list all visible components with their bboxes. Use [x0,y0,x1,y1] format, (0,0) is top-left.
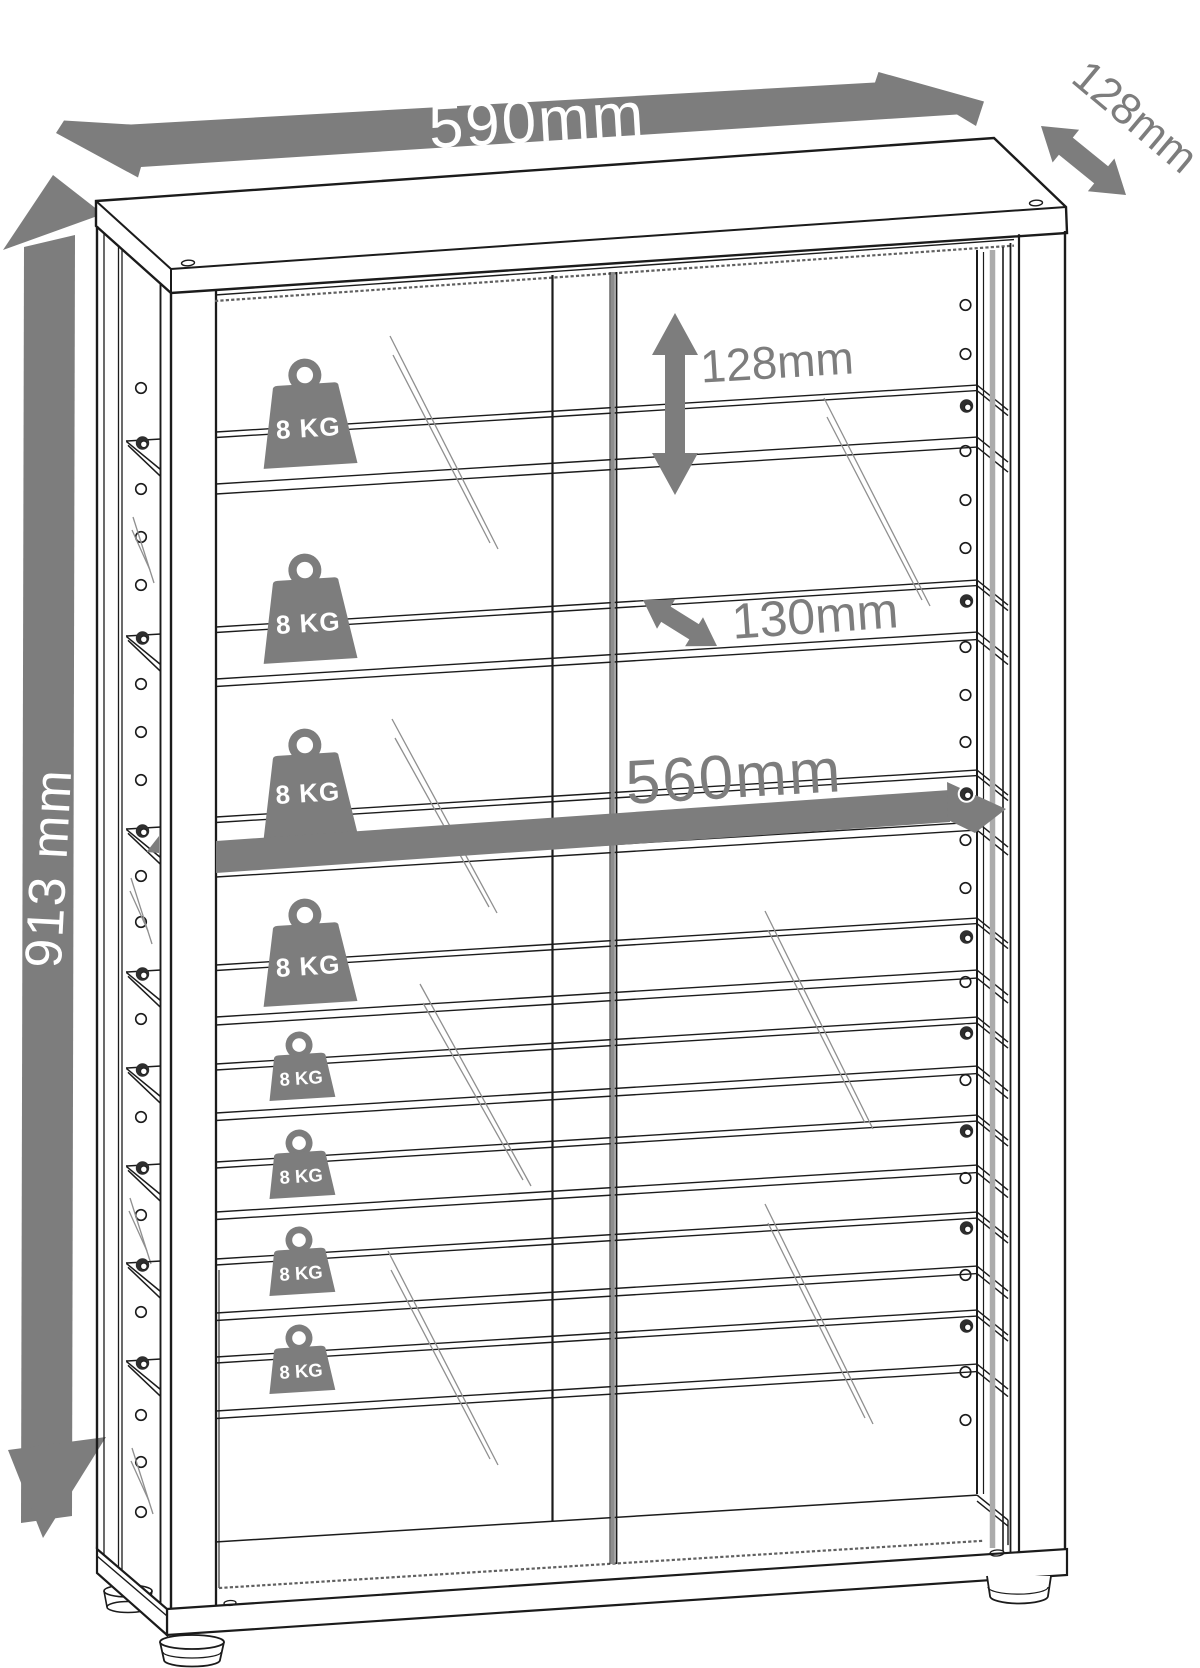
svg-text:8 KG: 8 KG [275,776,341,810]
svg-text:8 KG: 8 KG [275,411,341,445]
svg-text:128mm: 128mm [699,331,855,392]
svg-text:8 KG: 8 KG [279,1359,323,1383]
svg-text:560mm: 560mm [624,736,844,818]
svg-text:8 KG: 8 KG [279,1164,323,1188]
svg-text:913 mm: 913 mm [15,767,83,970]
svg-text:8 KG: 8 KG [275,949,341,983]
svg-text:590mm: 590mm [427,80,647,162]
svg-text:130mm: 130mm [730,582,900,649]
svg-text:8 KG: 8 KG [279,1261,323,1285]
svg-text:8 KG: 8 KG [279,1066,323,1090]
svg-text:8 KG: 8 KG [275,606,341,640]
